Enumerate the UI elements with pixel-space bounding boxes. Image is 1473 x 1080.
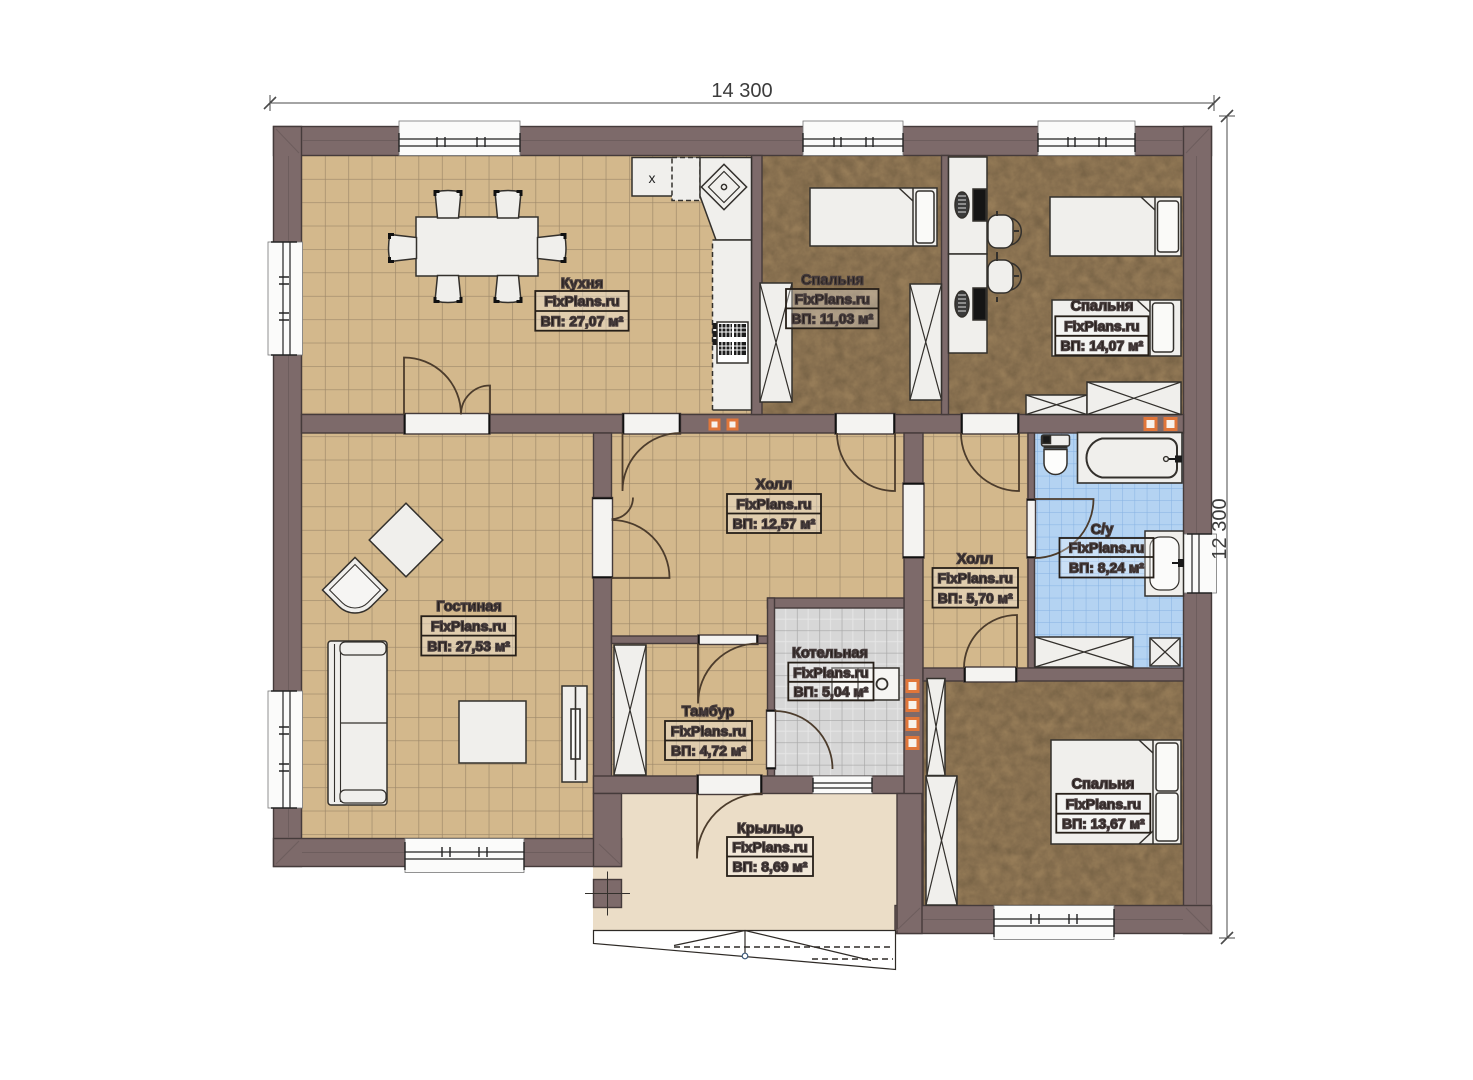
svg-text:FixPlans.ru: FixPlans.ru: [795, 291, 870, 307]
svg-text:ВП: 27,53 м²: ВП: 27,53 м²: [427, 638, 510, 654]
svg-text:Холл: Холл: [756, 477, 792, 493]
svg-text:FixPlans.ru: FixPlans.ru: [1069, 540, 1144, 556]
svg-text:ВП: 14,07 м²: ВП: 14,07 м²: [1061, 338, 1144, 354]
svg-text:Крыльцо: Крыльцо: [737, 821, 803, 837]
svg-text:Холл: Холл: [957, 552, 993, 568]
svg-text:Спальня: Спальня: [1072, 777, 1135, 793]
svg-text:ВП: 4,72 м²: ВП: 4,72 м²: [671, 743, 746, 759]
svg-text:Кухня: Кухня: [561, 276, 603, 292]
svg-text:ВП: 8,24 м²: ВП: 8,24 м²: [1069, 560, 1144, 576]
svg-text:FixPlans.ru: FixPlans.ru: [793, 664, 868, 680]
svg-text:ВП: 8,69 м²: ВП: 8,69 м²: [733, 859, 808, 875]
svg-text:FixPlans.ru: FixPlans.ru: [671, 723, 746, 739]
svg-text:FixPlans.ru: FixPlans.ru: [1064, 318, 1139, 334]
svg-text:ВП: 12,57 м²: ВП: 12,57 м²: [733, 516, 816, 532]
svg-text:Котельная: Котельная: [792, 645, 868, 661]
svg-text:Гостиная: Гостиная: [436, 599, 502, 615]
svg-text:ВП: 5,70 м²: ВП: 5,70 м²: [938, 590, 1013, 606]
svg-text:FixPlans.ru: FixPlans.ru: [1066, 796, 1141, 812]
svg-text:Спальня: Спальня: [801, 273, 864, 289]
svg-text:FixPlans.ru: FixPlans.ru: [736, 496, 811, 512]
svg-text:ВП: 11,03 м²: ВП: 11,03 м²: [791, 311, 873, 327]
svg-text:ВП: 13,67 м²: ВП: 13,67 м²: [1062, 815, 1145, 831]
svg-text:Спальня: Спальня: [1071, 299, 1134, 315]
svg-text:Тамбур: Тамбур: [682, 704, 735, 720]
svg-text:FixPlans.ru: FixPlans.ru: [938, 570, 1013, 586]
svg-text:С/у: С/у: [1091, 522, 1114, 538]
svg-text:ВП: 5,04 м²: ВП: 5,04 м²: [793, 683, 868, 699]
svg-text:ВП: 27,07 м²: ВП: 27,07 м²: [541, 313, 624, 329]
svg-text:12 300: 12 300: [1209, 498, 1231, 559]
svg-text:x: x: [649, 170, 656, 186]
svg-text:FixPlans.ru: FixPlans.ru: [732, 839, 807, 855]
svg-text:14 300: 14 300: [711, 80, 772, 102]
svg-text:FixPlans.ru: FixPlans.ru: [431, 618, 506, 634]
svg-text:FixPlans.ru: FixPlans.ru: [544, 293, 619, 309]
